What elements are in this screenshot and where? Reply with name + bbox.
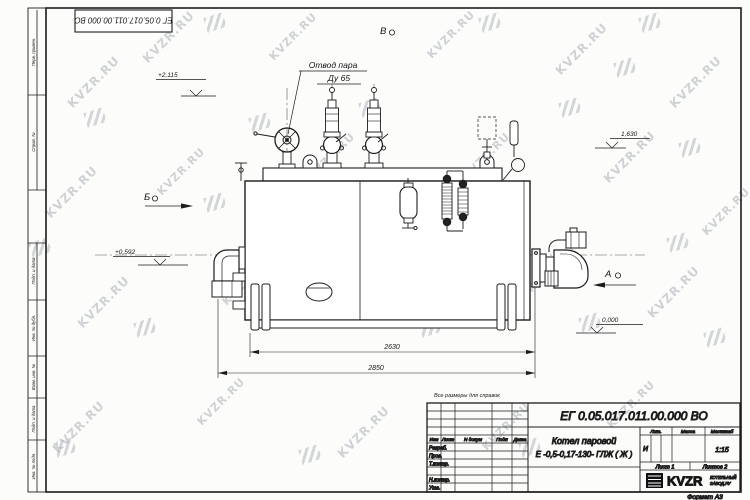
margin-label: Перв. примен. [31,38,36,67]
steam-outlet-label-1: Отвод пара [309,60,358,70]
safety-valve-2 [363,88,389,169]
title-designation: ЕГ 0.05.017.011.00.000 ВО [560,409,708,423]
col-data: Дата [513,437,527,443]
row-razrab: Разраб. [429,446,447,452]
elevation-mark-burner [113,257,188,266]
elevation-mark-top [156,80,216,97]
steam-valve [254,128,299,168]
lit-value: И [643,446,649,453]
drawing-canvas: Перв. примен. Справ. № Подп. и дата Инв.… [0,0,750,500]
view-label-v-circle [389,30,394,35]
row-tkontr: Т.контр. [429,462,449,468]
product-name-line1: Котел паровой [552,436,617,446]
drawing-sheet: KVZR.RU KVZR.RU KVZR.RU KVZR.RU KVZR.RU … [0,0,750,500]
reference-note: Все размеры для справок [434,393,500,399]
view-label-a: А [604,269,611,280]
flue-elbow [212,247,245,297]
lit-header: Лит. [649,429,661,435]
margin-label: Инв. № подл. [31,453,36,480]
margin-label: Инв. № дубл. [31,315,36,341]
drain-cock [235,163,247,181]
sheet-cell: Лист 1 [655,465,675,471]
dim-inner-value: 2630 [383,344,400,351]
view-arrow-b [145,196,193,209]
col-podp: Подп [496,437,508,443]
lifting-lug-left [303,155,317,168]
view-arrow-a [593,273,636,288]
sheets-cell: Листов 2 [702,465,728,471]
elevation-mid: 1,630 [621,131,638,138]
margin-label: Подп. и дата [31,257,36,285]
col-ndoc: N докум [464,437,483,443]
col-list: Лист [441,437,454,443]
row-prov: Пров. [429,454,442,460]
elevation-zero: 0,000 [602,317,619,324]
col-izm: Изм [430,437,440,443]
corner-stamp-designation: ЕГ 0.05.017.011.00.000 ВО [74,16,172,25]
steam-outlet-label-2: Ду 65 [327,73,350,83]
row-utv: Утв. [429,486,440,492]
burner [532,228,588,288]
elevation-mark-zero [576,325,643,334]
margin-label: Справ. № [31,132,36,152]
mass-header: Масса [681,429,696,435]
corner-stamp: ЕГ 0.05.017.011.00.000 ВО [74,10,172,32]
kvzr-logo: KVZR КОТЕЛЬНЫЙ ЗАВОД.РУ [646,473,736,489]
kvzr-logo-sub2: ЗАВОД.РУ [710,481,732,486]
vent-valve [478,117,496,160]
title-block: ЕГ 0.05.017.011.00.000 ВО Котел паровой … [427,403,740,500]
thermometer [503,121,525,180]
elevation-mark-mid [595,139,650,149]
kvzr-logo-text: KVZR [667,474,703,489]
scale-value: 1:15 [715,447,729,454]
view-label-b: Б [144,192,150,203]
format-label: Формат А3 [687,494,723,500]
elevation-burner: +0,592 [115,249,135,256]
view-label-v: В [380,26,387,37]
margin-label: Подп. и дата [31,405,36,433]
boiler-side-view [95,30,650,378]
scale-header: Масштаб [711,429,734,435]
elevation-top: +2,115 [158,72,178,79]
safety-valve-1 [321,88,347,169]
boiler-shell [245,168,530,320]
kvzr-logo-sub1: КОТЕЛЬНЫЙ [710,475,736,480]
left-margin-labels: Перв. примен. Справ. № Подп. и дата Инв.… [31,38,36,480]
dim-outer-value: 2850 [367,365,384,372]
margin-label: Взам. инв. № [31,363,36,390]
product-name-line2: Е -0,5-0,17-130- ГЛЖ ( Ж ) [536,450,633,459]
row-nkontr: Н.контр. [429,478,450,484]
